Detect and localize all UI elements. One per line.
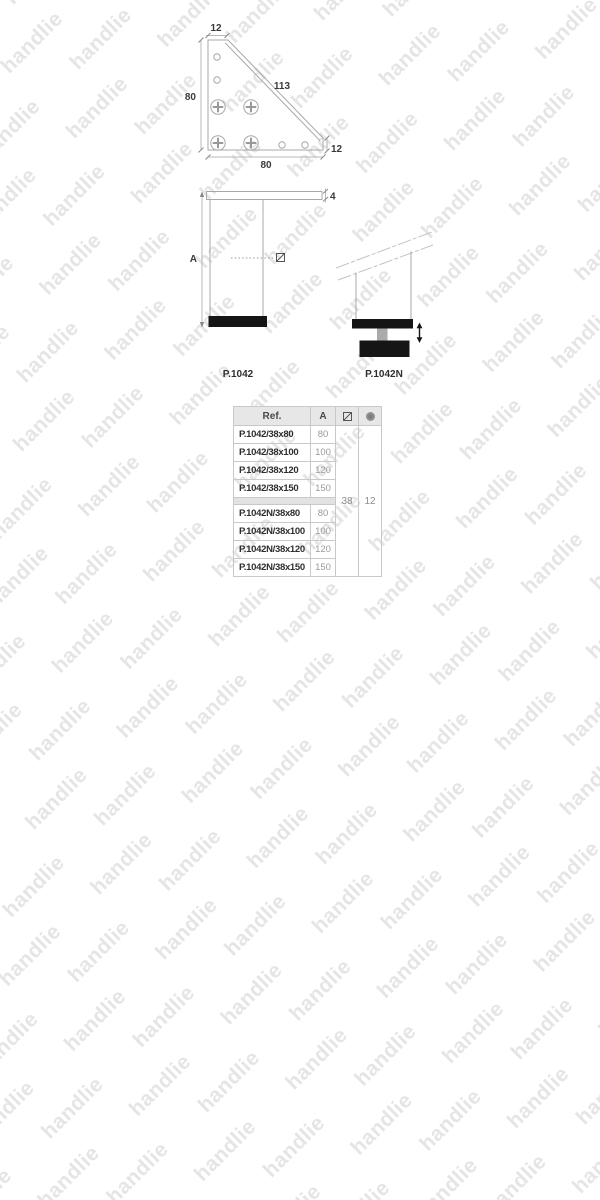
- threaded-stem: [377, 329, 388, 341]
- ref-cell: P.1042/38x150: [234, 480, 311, 498]
- adjustment-arrow-icon: [417, 323, 423, 344]
- phillips-screw-hole-icon: [244, 100, 258, 114]
- ref-cell: P.1042/38x120: [234, 462, 311, 480]
- fixed-leg-drawing: 4 A P.1042: [190, 189, 336, 381]
- spec-table: Ref. A P.1042/38x80 80 38 12 P: [233, 406, 382, 577]
- fixed-leg-label: P.1042: [223, 369, 254, 380]
- diameter-icon: [342, 411, 353, 422]
- pilot-hole-icon: [214, 77, 220, 83]
- plate-outline: [208, 40, 323, 150]
- ref-cell: P.1042N/38x120: [234, 541, 311, 559]
- pilot-hole-icon: [302, 142, 308, 148]
- foot-icon: [365, 411, 376, 422]
- dim-thickness-label: 4: [330, 192, 336, 203]
- tube-end-cap: [352, 319, 413, 329]
- a-cell: 80: [311, 505, 336, 523]
- diameter-value-cell: 38: [336, 426, 359, 577]
- foot-value-cell: 12: [359, 426, 382, 577]
- pilot-hole-icon: [214, 54, 220, 60]
- plate-fold-line: [225, 43, 320, 141]
- diameter-symbol-icon: [277, 254, 285, 262]
- adjustable-leg-label: P.1042N: [365, 369, 403, 380]
- mounting-plate-drawing: 12 80 113 12 80: [185, 23, 343, 171]
- dim-left-label: 80: [185, 92, 197, 103]
- a-cell: 100: [311, 523, 336, 541]
- header-ref: Ref.: [234, 407, 311, 426]
- ref-cell: P.1042N/38x80: [234, 505, 311, 523]
- ref-cell: P.1042/38x80: [234, 426, 311, 444]
- header-foot: [359, 407, 382, 426]
- ref-cell: P.1042/38x100: [234, 444, 311, 462]
- a-cell: 120: [311, 541, 336, 559]
- phillips-screw-hole-icon: [244, 136, 258, 150]
- dim-right-label: 12: [331, 144, 343, 155]
- leg-foot: [209, 316, 268, 327]
- a-cell: 120: [311, 462, 336, 480]
- technical-drawings: 12 80 113 12 80 4 A: [0, 0, 600, 400]
- dim-top-label: 12: [210, 23, 222, 34]
- dim-hypotenuse-label: 113: [274, 81, 291, 92]
- a-cell: 100: [311, 444, 336, 462]
- pilot-hole-icon: [279, 142, 285, 148]
- table-header-row: Ref. A: [234, 407, 382, 426]
- ref-cell: P.1042N/38x100: [234, 523, 311, 541]
- a-cell: 150: [311, 480, 336, 498]
- phillips-screw-hole-icon: [211, 136, 225, 150]
- header-a: A: [311, 407, 336, 426]
- adjustable-leg-drawing: P.1042N: [336, 232, 433, 380]
- dim-bottom-label: 80: [260, 160, 272, 171]
- dim-height-label: A: [190, 254, 197, 265]
- a-cell: 80: [311, 426, 336, 444]
- phillips-screw-hole-icon: [211, 100, 225, 114]
- header-diameter: [336, 407, 359, 426]
- ref-cell: P.1042N/38x150: [234, 559, 311, 577]
- adjustable-foot: [360, 341, 410, 358]
- table-row: P.1042/38x80 80 38 12: [234, 426, 382, 444]
- leg-top-plate: [207, 192, 323, 200]
- a-cell: 150: [311, 559, 336, 577]
